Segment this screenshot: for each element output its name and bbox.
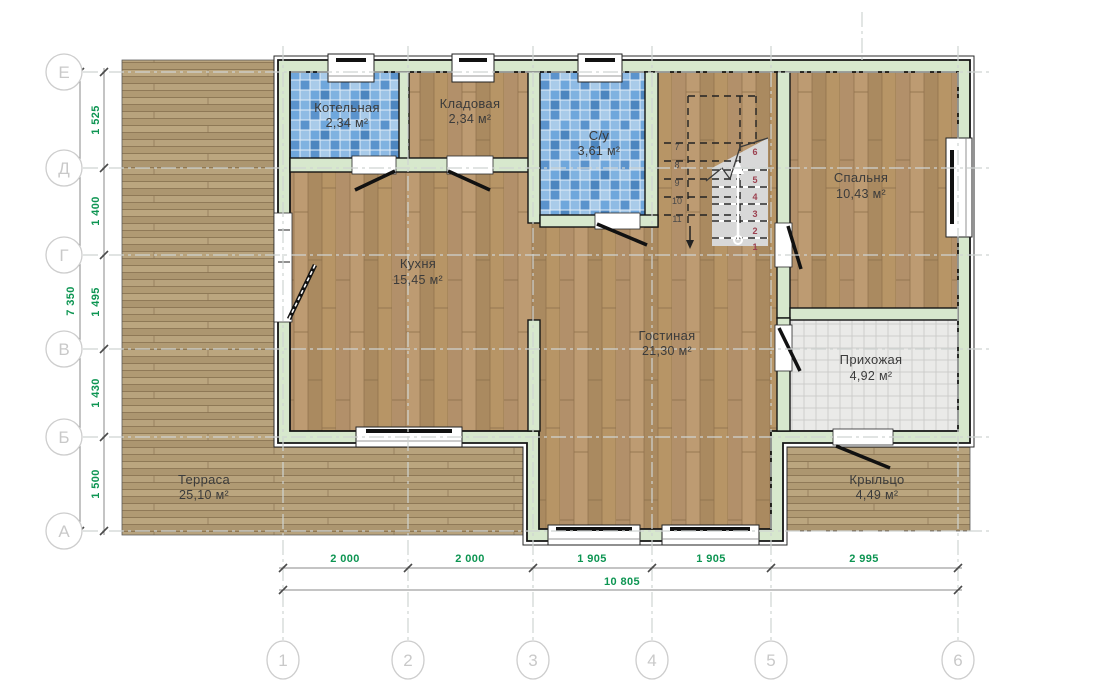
- stair-step-6: 6: [752, 147, 757, 157]
- dim-left-seg-1: 1 525: [90, 105, 102, 135]
- stair-step-3: 3: [752, 209, 757, 219]
- axis-col-bubbles: 1 2 3 4 5 6: [267, 641, 974, 679]
- bathroom-area: 3,61 м²: [578, 144, 621, 158]
- dim-left-seg-2: 1 400: [90, 196, 102, 226]
- dim-bottom-seg-1: 2 000: [330, 553, 360, 565]
- axis-col-3: 3: [528, 651, 537, 670]
- storage-door-opening: [447, 156, 493, 174]
- stair-step-10: 10: [672, 196, 682, 206]
- window-living-south-left: [548, 525, 640, 545]
- stair-step-2: 2: [752, 226, 757, 236]
- axis-col-4: 4: [647, 651, 656, 670]
- stair-step-5: 5: [752, 175, 757, 185]
- living-room-name: Гостиная: [639, 328, 696, 343]
- boiler-door-opening: [352, 156, 396, 174]
- floor-plan-canvas: 7 8 9 10 11 6 5 4 3 2 1 Котельная 2,34 м…: [0, 0, 1101, 690]
- wall-kitchen-living-lower: [528, 320, 540, 431]
- living-room-area: 21,30 м²: [642, 344, 692, 358]
- dim-bottom-seg-4: 1 905: [696, 553, 726, 565]
- storage-room-area: 2,34 м²: [449, 112, 492, 126]
- porch-area: 4,49 м²: [856, 488, 899, 502]
- dim-bottom-total: 10 805: [604, 576, 640, 588]
- axis-col-2: 2: [403, 651, 412, 670]
- kitchen-area: 15,45 м²: [393, 273, 443, 287]
- dim-left-seg-3: 1 495: [90, 287, 102, 317]
- stair-step-11: 11: [672, 214, 681, 224]
- terrace-area: 25,10 м²: [179, 488, 229, 502]
- dim-bottom-seg-2: 2 000: [455, 553, 485, 565]
- hallway-area: 4,92 м²: [850, 369, 893, 383]
- bathroom-name: С/у: [589, 128, 610, 143]
- axis-col-1: 1: [278, 651, 287, 670]
- stair-step-4: 4: [752, 192, 757, 202]
- window-bedroom-east: [946, 138, 972, 237]
- stair-step-9: 9: [674, 178, 679, 188]
- storage-room-name: Кладовая: [440, 96, 501, 111]
- axis-col-6: 6: [953, 651, 962, 670]
- bedroom-name: Спальня: [834, 170, 888, 185]
- window-living-south-right: [662, 525, 759, 545]
- stair-step-1: 1: [752, 242, 757, 252]
- hallway-name: Прихожая: [840, 352, 903, 367]
- dim-left-total: 7 350: [65, 286, 77, 316]
- axis-row-G: Г: [59, 246, 68, 265]
- window-top-bathroom: [578, 54, 622, 82]
- axis-col-5: 5: [766, 651, 775, 670]
- bedroom-area: 10,43 м²: [836, 187, 886, 201]
- wall-north-rooms-south: [290, 158, 539, 172]
- window-top-storage: [452, 54, 494, 82]
- dim-bottom-seg-3: 1 905: [577, 553, 607, 565]
- axis-row-A: А: [58, 522, 70, 541]
- wall-bedroom-west: [777, 72, 790, 318]
- axis-row-V: В: [58, 340, 69, 359]
- axis-row-D: Д: [58, 159, 70, 178]
- boiler-room-name: Котельная: [314, 100, 380, 115]
- axis-row-B: Б: [58, 428, 69, 447]
- dim-bottom-seg-5: 2 995: [849, 553, 879, 565]
- dim-left-seg-4: 1 430: [90, 378, 102, 408]
- porch-name: Крыльцо: [849, 472, 904, 487]
- terrace-name: Терраса: [178, 472, 230, 487]
- stair-step-7: 7: [674, 142, 679, 152]
- window-top-boiler: [328, 54, 374, 82]
- wall-bedroom-south: [790, 308, 958, 320]
- wall-kitchen-living-upper: [528, 72, 540, 223]
- axis-row-E: Е: [58, 63, 69, 82]
- kitchen-name: Кухня: [400, 256, 436, 271]
- dim-left-seg-5: 1 500: [90, 469, 102, 499]
- boiler-room-area: 2,34 м²: [326, 116, 369, 130]
- floor-plan-page: 7 8 9 10 11 6 5 4 3 2 1 Котельная 2,34 м…: [0, 0, 1101, 690]
